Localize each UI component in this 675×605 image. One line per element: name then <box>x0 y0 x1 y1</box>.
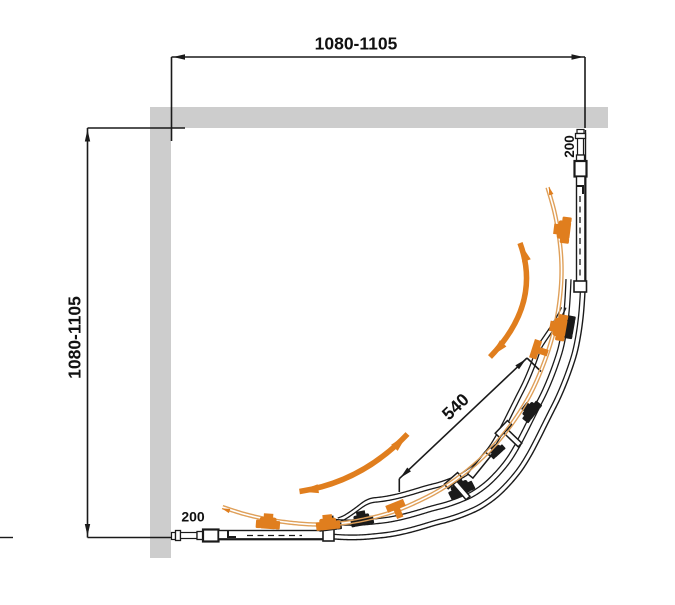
svg-text:200: 200 <box>562 135 577 158</box>
svg-text:540: 540 <box>438 389 473 424</box>
svg-text:200: 200 <box>181 509 205 525</box>
svg-text:1080-1105: 1080-1105 <box>65 296 85 379</box>
svg-text:1080-1105: 1080-1105 <box>315 34 398 54</box>
